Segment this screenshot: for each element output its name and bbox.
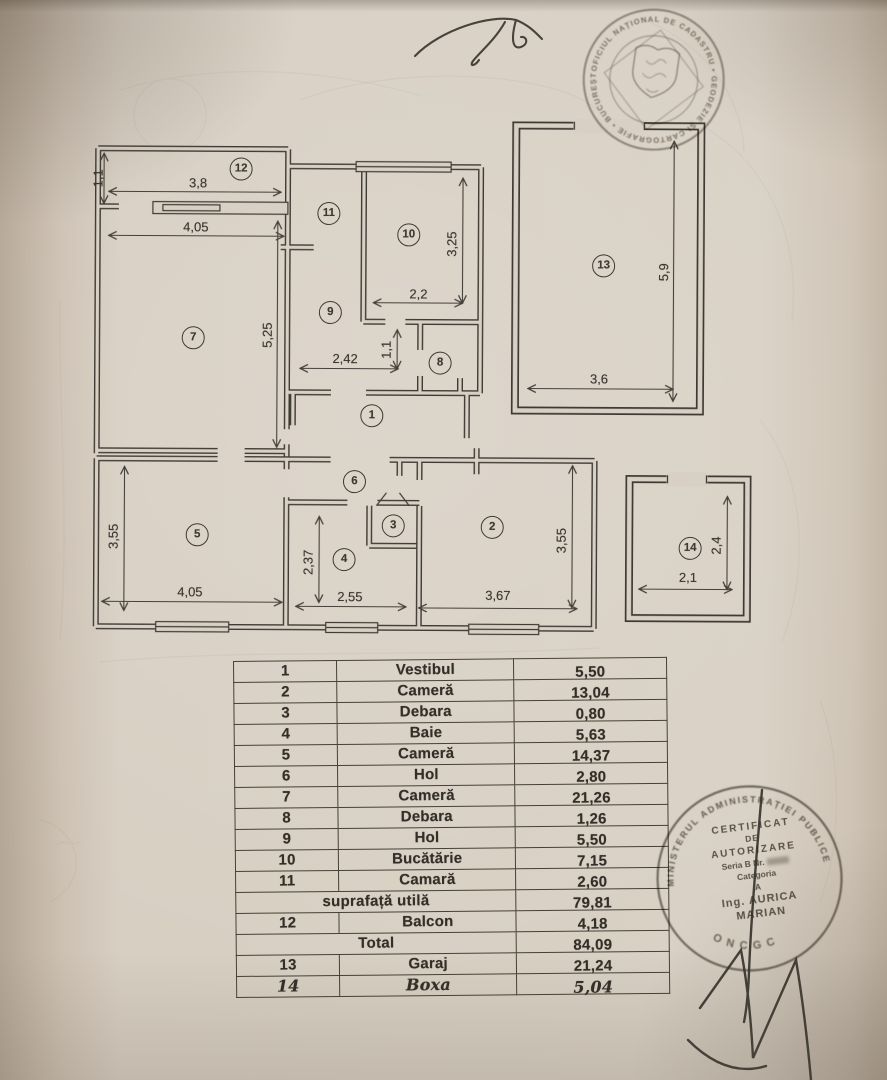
table-row: 12Balcon4,18 (236, 909, 669, 934)
dimension-label: 2,37 (300, 550, 315, 575)
room-number: 3 (382, 514, 405, 537)
table-row: 9Hol5,50 (235, 825, 668, 850)
floorplan: 1,13,84,055,253,252,22,421,15,93,63,554,… (84, 106, 772, 660)
dimension-label: 1,1 (379, 341, 394, 359)
dimension-label: 3,67 (485, 588, 510, 603)
table-row: suprafață utilă79,81 (236, 888, 669, 913)
room-area: 2,80 (515, 762, 668, 784)
room-area: 5,50 (514, 657, 667, 679)
room-area: 5,50 (515, 825, 668, 847)
room-index: 5 (234, 744, 337, 766)
room-number: 2 (481, 516, 504, 539)
room-name: Bucătărie (339, 848, 516, 871)
room-area: 21,26 (515, 783, 668, 805)
table-row: 2Cameră13,04 (234, 678, 667, 703)
room-index: 8 (235, 807, 338, 829)
room-name: Baie (337, 722, 514, 745)
room-index: 6 (235, 765, 338, 787)
dimension-label: 2,4 (709, 536, 724, 554)
room-number: 14 (679, 537, 702, 560)
stamp-bottom-ring-bottom-text: ONCGC (710, 925, 783, 957)
coat-of-arms-icon (629, 44, 680, 101)
dimension-label: 3,55 (106, 524, 121, 549)
dimension-label: 1,1 (91, 169, 106, 187)
room-name: Camară (339, 869, 516, 892)
room-name: Cameră (338, 743, 515, 766)
room-area: 79,81 (516, 888, 669, 910)
table-row: 8Debara1,26 (235, 804, 668, 829)
room-area: 5,04 (517, 972, 670, 994)
room-area: 5,63 (514, 720, 667, 742)
room-index: 1 (234, 661, 337, 683)
svg-text:ONCGC: ONCGC (710, 925, 783, 957)
room-number: 4 (333, 548, 356, 571)
illegible-serial-number (766, 856, 789, 866)
dimension-label: 5,9 (656, 263, 671, 281)
room-number: 8 (429, 352, 452, 375)
room-area: 0,80 (514, 699, 667, 721)
room-area: 84,09 (516, 930, 669, 952)
room-number: 5 (186, 523, 209, 546)
stamp-bottom-inner-text: CERTIFICAT DE AUTORIZARE Seria B Nr. Cat… (686, 813, 825, 929)
room-name: Balcon (339, 911, 516, 934)
room-number: 13 (592, 254, 615, 277)
photo-vignette (0, 0, 887, 12)
room-name: Debara (337, 701, 514, 724)
room-number: 12 (230, 157, 253, 180)
room-index: 13 (236, 954, 339, 976)
dimension-label: 2,2 (409, 286, 427, 301)
room-name: Boxa (340, 974, 517, 997)
room-index: 3 (234, 703, 337, 725)
dimension-label: 2,1 (679, 570, 697, 585)
table-row: 10Bucătărie7,15 (235, 846, 668, 871)
dimension-label: 2,55 (337, 589, 362, 604)
room-number: 1 (360, 404, 383, 427)
room-area: 21,24 (517, 951, 670, 973)
table-row: 4Baie5,63 (234, 720, 667, 745)
table-row: 1Vestibul5,50 (234, 657, 667, 682)
room-name: Garaj (340, 953, 517, 976)
dimension-label: 3,6 (590, 371, 608, 386)
table-row: 7Cameră21,26 (235, 783, 668, 808)
room-area: 1,26 (515, 804, 668, 826)
room-area: 4,18 (516, 909, 669, 931)
room-name: Debara (338, 806, 515, 829)
room-index: 14 (237, 975, 340, 997)
room-number: 9 (319, 301, 342, 324)
row-label: suprafață utilă (236, 890, 516, 914)
room-area: 14,37 (515, 741, 668, 763)
dimension-label: 3,55 (554, 528, 569, 553)
room-number: 6 (343, 470, 366, 493)
room-name: Vestibul (337, 659, 514, 682)
row-label: Total (236, 932, 516, 956)
table-row: 5Cameră14,37 (234, 741, 667, 766)
room-name: Hol (338, 764, 515, 787)
table-row: 3Debara0,80 (234, 699, 667, 724)
room-area: 7,15 (516, 846, 669, 868)
table-row: 11Camară2,60 (236, 867, 669, 892)
room-number: 7 (182, 326, 205, 349)
dimension-label: 4,05 (183, 219, 208, 234)
room-area: 2,60 (516, 867, 669, 889)
table-row: Total84,09 (236, 930, 669, 955)
table-row: 6Hol2,80 (235, 762, 668, 787)
room-index: 11 (236, 870, 339, 892)
room-area: 13,04 (514, 678, 667, 700)
room-index: 2 (234, 682, 337, 704)
room-name: Cameră (338, 785, 515, 808)
room-index: 7 (235, 786, 338, 808)
dimension-label: 2,42 (332, 351, 357, 366)
table-row: 14Boxa5,04 (237, 972, 670, 997)
room-index: 10 (235, 849, 338, 871)
room-index: 12 (236, 912, 339, 934)
room-number: 11 (317, 202, 340, 225)
room-number: 10 (397, 223, 420, 246)
room-index: 9 (235, 828, 338, 850)
room-name: Hol (338, 827, 515, 850)
table-row: 13Garaj21,24 (236, 951, 669, 976)
dimension-label: 3,8 (189, 175, 207, 190)
dimension-label: 3,25 (444, 231, 459, 256)
room-index: 4 (234, 724, 337, 746)
room-area-table: 1Vestibul5,502Cameră13,043Debara0,804Bai… (233, 657, 670, 998)
dimension-label: 5,25 (260, 322, 275, 347)
scanned-floorplan-document: 1,13,84,055,253,252,22,421,15,93,63,554,… (0, 0, 887, 1080)
dimension-label: 4,05 (177, 584, 202, 599)
room-name: Cameră (337, 680, 514, 703)
floorplan-labels: 1,13,84,055,253,252,22,421,15,93,63,554,… (84, 106, 772, 660)
